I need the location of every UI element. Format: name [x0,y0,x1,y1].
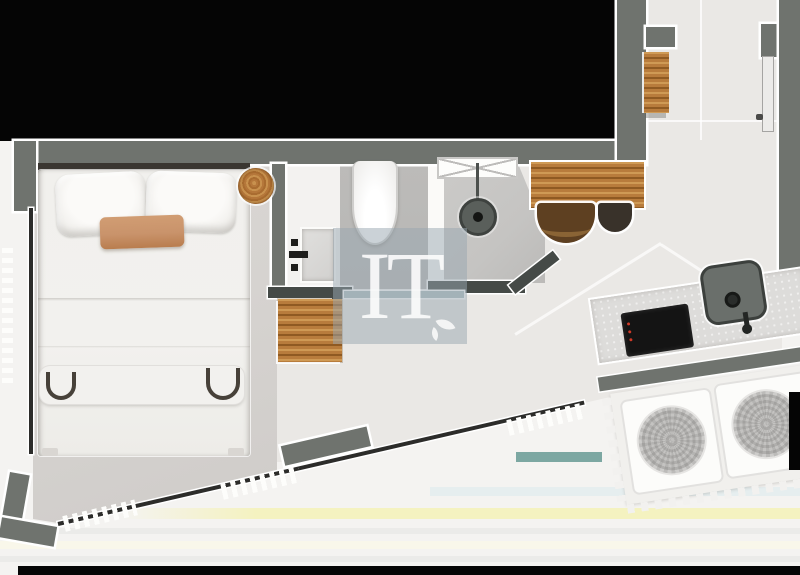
void-right-notch [789,392,800,470]
kitchen-sink [698,258,768,327]
floor-grout-line [700,0,702,140]
dining-table [531,162,644,208]
side-table [238,168,274,204]
entry-cabinet-shadow [645,113,666,118]
sink-drain [724,291,742,309]
entry-door-leaf [762,56,774,132]
shower-arm [476,163,479,200]
door-handle [756,114,763,120]
faucet-dot [291,264,298,271]
faucet-handle [289,251,308,258]
window-hatch-left [2,248,13,386]
cooktop-indicator [627,322,630,325]
void-top [0,0,617,141]
cooktop-indicator [628,330,631,333]
bed [38,170,250,456]
watermark: IT [333,228,467,344]
wall-top [14,141,622,164]
floor-plan: IT [0,0,800,575]
wall-entry-branch [646,27,675,47]
wall-door-jamb [761,24,780,57]
accent-cushion [99,215,184,250]
wall-left [14,141,36,211]
counter-balcony-group [588,254,800,515]
wall-corner-L [0,472,69,551]
band-teal [516,452,602,462]
chair-back-arc [541,219,591,237]
duvet-fold [38,298,250,301]
band-gray [0,528,800,534]
wall-bathroom-left [272,164,285,290]
cooktop-indicator [629,338,632,341]
window-left [29,208,33,454]
floor-grout-line [646,120,779,122]
entry-cabinet [644,52,669,113]
watermark-text: IT [359,238,442,334]
void-bottom-bar [18,566,800,575]
wall-entry-vertical [617,0,646,164]
wall-corner-L-horizontal [0,517,57,546]
band-gray [0,556,800,562]
band-cream [0,541,800,549]
bed-foot-right [228,448,244,456]
bed-foot-left [42,448,58,456]
faucet-dot [291,239,298,246]
duvet-fold [38,346,250,348]
shower-drain-dot [473,212,483,222]
band-yellow [120,508,800,519]
